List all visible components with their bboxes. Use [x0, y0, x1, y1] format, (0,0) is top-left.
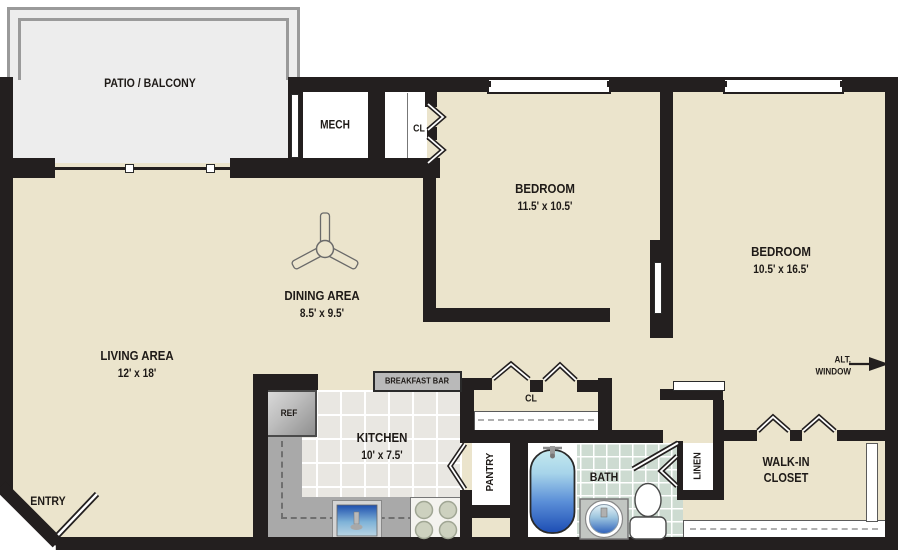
wall-bedroom1-bottom [423, 308, 610, 322]
hall-closet-label: CL [525, 393, 537, 406]
kitchen-sink-frame [332, 500, 382, 540]
room-name: BEDROOM [751, 244, 811, 259]
dining-label: DINING AREA 8.5' x 9.5' [284, 288, 359, 322]
hall-closet-shelf-dash [478, 419, 594, 421]
tub-surround [528, 443, 577, 537]
room-name: DINING AREA [284, 288, 359, 303]
bedroom1-label: BEDROOM 11.5' x 10.5' [515, 181, 575, 215]
linen-label: LINEN [692, 452, 705, 480]
window-nub [840, 81, 846, 87]
wall-bath-west [510, 430, 528, 545]
refrigerator-label: REF [281, 408, 298, 420]
mech-door [291, 94, 299, 158]
pantry-label: PANTRY [484, 453, 498, 492]
wall-hallcloset-stub-r [577, 380, 612, 392]
wall-closet-post-top [425, 90, 437, 107]
wall-linen-bottom [677, 490, 723, 500]
room-name: WALK-IN [762, 455, 809, 469]
wall-hallcloset-stub-l [462, 378, 492, 390]
bedroom2-door-leaf [673, 381, 725, 391]
wall-mech-bottom [288, 158, 440, 178]
patio-railing-left-inner [18, 18, 21, 80]
window-nub [607, 81, 613, 87]
room-name: CLOSET [764, 471, 809, 485]
wall-kitchen-top-stub [253, 374, 318, 390]
wall-closet-post-mid [427, 127, 437, 140]
walkin-shelf-right [866, 443, 878, 522]
wall-kitchen-east-upper [460, 392, 472, 443]
room-dims: 12' x 18' [118, 368, 157, 380]
wall-kitchen-east-lower [460, 490, 472, 545]
bedroom1-window [487, 78, 611, 94]
wall-walkin-top-a [714, 430, 757, 441]
wall-linen-right [713, 400, 724, 500]
wall-left [0, 77, 13, 490]
counter-dash-vertical [281, 441, 283, 519]
alt-window-label: ALT. WINDOW [815, 354, 851, 377]
alt-window-line2: WINDOW [815, 366, 851, 376]
mech-label: MECH [320, 119, 350, 134]
patio-railing-right-inner [286, 18, 289, 80]
room-dims: 11.5' x 10.5' [518, 201, 573, 213]
kitchen-label: KITCHEN 10' x 7.5' [357, 430, 408, 464]
wall-walkin-top-b [790, 430, 802, 441]
bedroom1-door-leaf [654, 262, 662, 314]
window-nub [721, 81, 727, 87]
room-name: KITCHEN [357, 430, 408, 445]
patio-railing-right-outer [297, 7, 300, 80]
patio-railing-top-inner [18, 18, 289, 21]
room-name: LIVING AREA [100, 348, 173, 363]
wall-patio-bottom-left [0, 158, 55, 178]
wall-bedrooms-divider-upper [660, 88, 673, 240]
wall-patio-bottom-right [230, 158, 303, 178]
entry-label: ENTRY [30, 494, 65, 510]
alt-window-line1: ALT. [835, 354, 852, 364]
wall-bath-top [462, 430, 663, 443]
patio-slider-handle [206, 164, 215, 173]
room-name: BEDROOM [515, 181, 575, 196]
patio-label: PATIO / BALCONY [104, 76, 196, 92]
floor-plan: PATIO / BALCONY MECH CL BEDROOM 11.5' x … [0, 0, 898, 550]
window-nub [485, 81, 491, 87]
patio-railing-left-outer [7, 7, 10, 80]
wall-kitchen-west [253, 374, 268, 537]
patio-railing-top-outer [7, 7, 300, 10]
stove [410, 497, 462, 540]
walkin-closet-label: WALK-IN CLOSET [762, 454, 809, 487]
bath-label: BATH [590, 470, 619, 486]
bedroom2-window [723, 78, 844, 94]
wall-dining-bedroom1 [423, 170, 436, 322]
wall-bottom [48, 537, 898, 550]
wall-walkin-top-c [837, 430, 885, 441]
room-dims: 10' x 7.5' [361, 450, 402, 462]
bedroom2-label: BEDROOM 10.5' x 16.5' [751, 244, 811, 278]
room-dims: 8.5' x 9.5' [300, 308, 344, 320]
wall-hallcloset-stub-m [530, 380, 543, 392]
bedroom1-closet-label: CL [413, 123, 425, 136]
bedroom1-closet-track [407, 93, 408, 159]
room-dims: 10.5' x 16.5' [753, 264, 808, 276]
wall-right [885, 77, 898, 550]
hall-closet-shelf [474, 411, 600, 432]
living-label: LIVING AREA 12' x 18' [100, 348, 173, 382]
patio-slider-handle [125, 164, 134, 173]
walkin-shelf-dash [690, 528, 878, 530]
breakfast-bar-label: BREAKFAST BAR [385, 375, 449, 386]
